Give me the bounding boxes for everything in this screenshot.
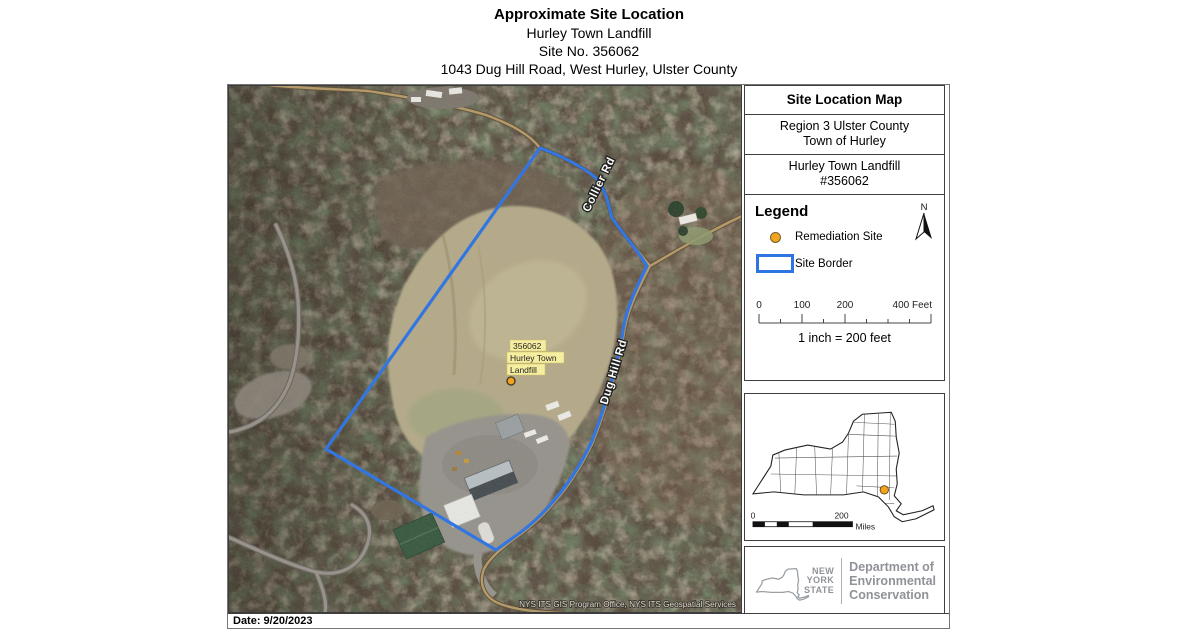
svg-text:Miles: Miles: [855, 522, 875, 532]
site-border-icon: [755, 254, 795, 273]
panel-header-box: Site Location Map Region 3 Ulster County…: [744, 85, 945, 195]
svg-text:0: 0: [756, 300, 762, 311]
svg-text:400 Feet: 400 Feet: [893, 300, 933, 311]
scale-ratio-text: 1 inch = 200 feet: [755, 331, 934, 345]
region-line1: Region 3 Ulster County: [745, 119, 944, 134]
date-strip: Date: 9/20/2023: [228, 613, 949, 628]
panel-region: Region 3 Ulster County Town of Hurley: [745, 115, 944, 155]
page-title: Approximate Site Location: [228, 5, 950, 24]
svg-text:100: 100: [794, 300, 811, 311]
ny-state-map: 0 200 Miles: [745, 394, 944, 540]
dec-logo-box: NEW YORK STATE Department of Environment…: [744, 546, 945, 616]
panel-site: Hurley Town Landfill #356062: [745, 155, 944, 194]
site-number: #356062: [745, 174, 944, 189]
north-arrow: N: [913, 201, 935, 243]
dec-state-text: NEW YORK STATE: [804, 567, 834, 596]
site-name: Hurley Town Landfill: [745, 159, 944, 174]
page: Approximate Site Location Hurley Town La…: [0, 0, 1200, 630]
aerial-map-image: 356062 Hurley Town Landfill Collier Rd D…: [228, 85, 742, 613]
state-locator-box: 0 200 Miles: [744, 393, 945, 541]
ny-outline-icon: [753, 560, 811, 602]
dec-divider: [841, 558, 842, 604]
remediation-site-icon: [755, 232, 795, 243]
region-line2: Town of Hurley: [745, 134, 944, 149]
legend-heading: Legend: [755, 203, 934, 220]
miles-scale-bar: [753, 522, 853, 527]
title-block: Approximate Site Location Hurley Town La…: [228, 5, 950, 78]
feet-scale-bar: 0 100 200 400 Feet: [755, 299, 936, 327]
aerial-map: 356062 Hurley Town Landfill Collier Rd D…: [228, 85, 742, 613]
state-map-site-dot: [880, 486, 888, 494]
dec-department-text: Department of Environmental Conservation: [849, 560, 936, 602]
legend-item-label: Site Border: [795, 258, 853, 270]
map-frame: 356062 Hurley Town Landfill Collier Rd D…: [227, 84, 950, 629]
map-date: Date: 9/20/2023: [233, 615, 313, 627]
title-site-name: Hurley Town Landfill: [228, 24, 950, 42]
legend-item: Remediation Site: [755, 231, 934, 243]
legend-box: Legend N Remediation Site Site Border: [744, 194, 945, 381]
legend-item: Site Border: [755, 254, 934, 273]
side-panel: Site Location Map Region 3 Ulster County…: [744, 85, 947, 613]
title-address: 1043 Dug Hill Road, West Hurley, Ulster …: [228, 60, 950, 78]
legend-item-label: Remediation Site: [795, 231, 883, 243]
svg-text:200: 200: [834, 511, 848, 521]
svg-text:0: 0: [751, 511, 756, 521]
svg-text:200: 200: [837, 300, 854, 311]
panel-title: Site Location Map: [745, 86, 944, 115]
north-label: N: [921, 202, 928, 213]
north-arrow-icon: N: [913, 201, 935, 243]
title-site-number: Site No. 356062: [228, 42, 950, 60]
